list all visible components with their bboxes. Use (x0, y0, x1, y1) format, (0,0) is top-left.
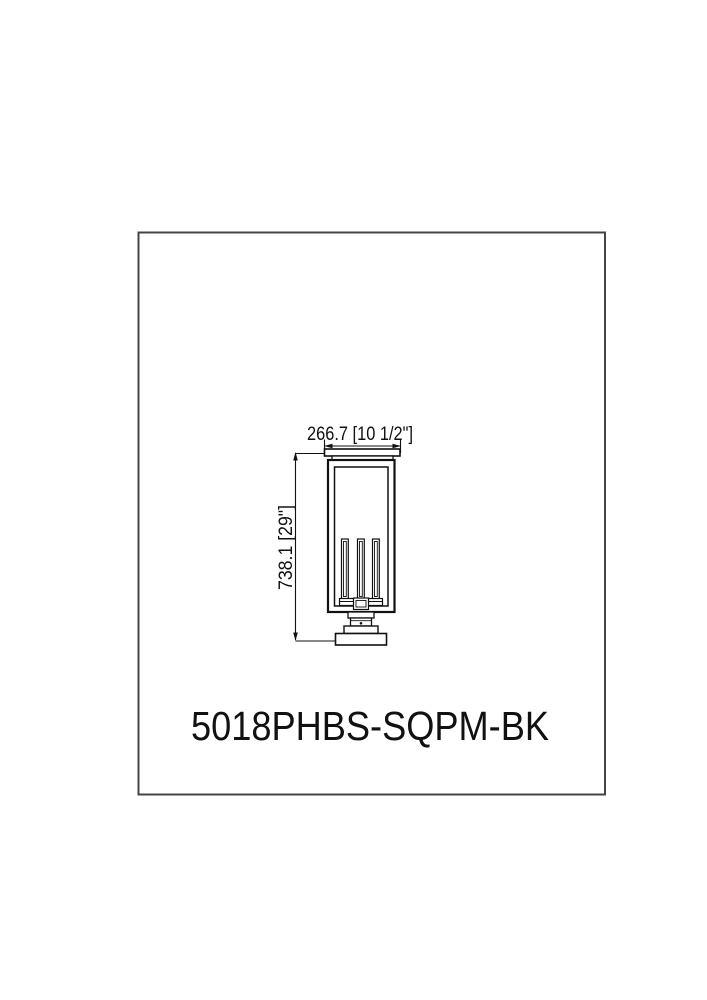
arrow-down-icon (293, 633, 298, 642)
candle-tube-center (358, 539, 365, 600)
candle-tube-right (373, 539, 380, 600)
candle-tube-left (342, 539, 349, 600)
lantern-top-cap (325, 449, 401, 456)
spec-sheet-drawing: 266.7 [10 1/2"] 738.1 [29"] (0, 0, 707, 1000)
width-dimension-label: 266.7 [10 1/2"] (307, 424, 413, 445)
pier-mount-neck (348, 612, 374, 626)
model-number-label: 5018PHBS-SQPM-BK (191, 703, 549, 749)
pier-mount-base (336, 626, 387, 645)
set-screw-dot (360, 622, 363, 625)
spec-sheet-page: 266.7 [10 1/2"] 738.1 [29"] (0, 0, 707, 1000)
lantern-fixture-drawing (325, 449, 401, 645)
height-dimension-label: 738.1 [29"] (276, 505, 297, 590)
